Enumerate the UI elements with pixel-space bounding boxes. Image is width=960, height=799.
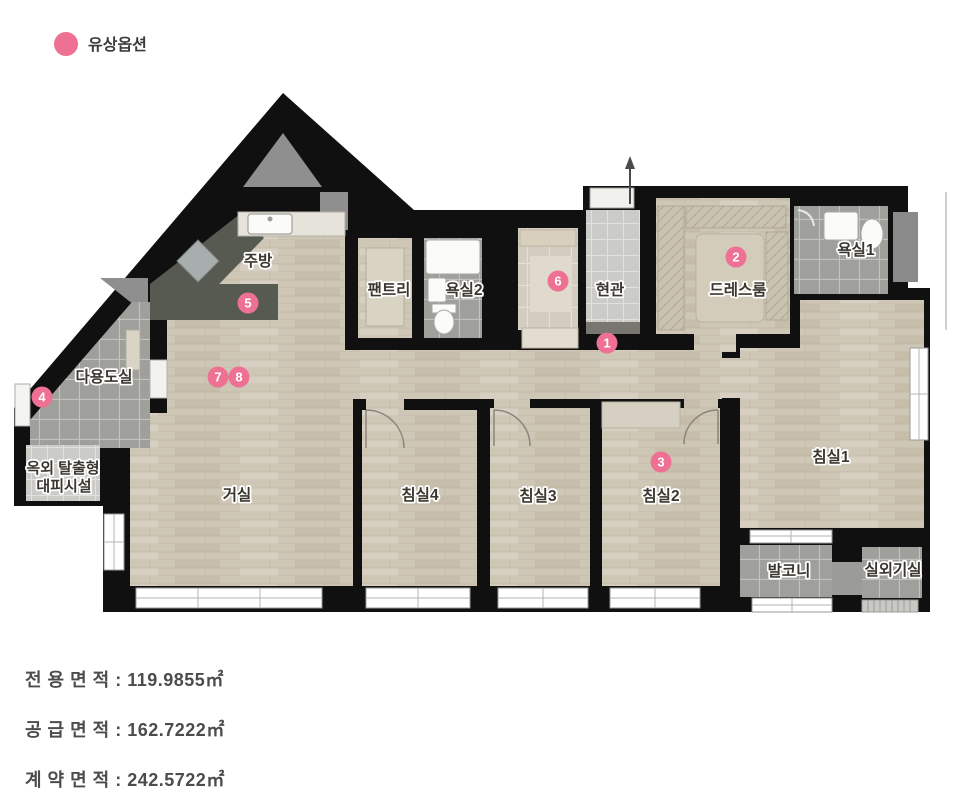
storage-shelf-top bbox=[520, 230, 576, 246]
room-label-pantry: 팬트리 bbox=[368, 281, 411, 299]
kitchen-sink-faucet bbox=[268, 217, 273, 222]
bath2-basin bbox=[428, 278, 446, 302]
balcony-passage bbox=[832, 562, 862, 595]
bedroom2-closet bbox=[602, 402, 680, 428]
room-label-ac-room: 실외기실 bbox=[864, 561, 921, 579]
shelter-exterior-door bbox=[15, 384, 30, 426]
room-label-bedroom3: 침실3 bbox=[519, 486, 557, 505]
option-marker-7-number: 7 bbox=[214, 370, 221, 385]
room-label-entrance: 현관 bbox=[596, 280, 625, 299]
bedroom1-opening bbox=[718, 358, 742, 398]
floorplan-svg: 주방 팬트리 욕실2 현관 드레스룸 욕실1 다용도실 거실 침실4 침실3 침… bbox=[0, 0, 960, 799]
area-info: 전 용 면 적 : 119.9855㎡ 공 급 면 적 : 162.7222㎡ … bbox=[25, 669, 225, 790]
room-label-shelter-line2: 대피시설 bbox=[36, 478, 91, 495]
area-supply: 공 급 면 적 : 162.7222㎡ bbox=[25, 719, 225, 740]
legend-label: 유상옵션 bbox=[88, 36, 147, 54]
option-marker-5: 5 bbox=[238, 293, 259, 314]
bath1-basin bbox=[824, 212, 858, 240]
entrance-door bbox=[590, 188, 634, 208]
option-marker-4: 4 bbox=[32, 387, 53, 408]
bath2-toilet bbox=[434, 310, 454, 334]
room-label-utility: 다용도실 bbox=[75, 368, 132, 386]
option-marker-1: 1 bbox=[597, 333, 618, 354]
option-marker-3-number: 3 bbox=[657, 455, 664, 470]
option-marker-8: 8 bbox=[229, 367, 250, 388]
option-marker-5-number: 5 bbox=[244, 296, 251, 311]
option-marker-6-number: 6 bbox=[554, 274, 561, 289]
room-label-bedroom2: 침실2 bbox=[642, 486, 679, 505]
room-label-dressroom: 드레스룸 bbox=[709, 281, 766, 299]
option-marker-2: 2 bbox=[726, 247, 747, 268]
room-label-bedroom1: 침실1 bbox=[812, 447, 850, 466]
bath2-tub bbox=[426, 240, 480, 274]
area-contract: 계 약 면 적 : 242.5722㎡ bbox=[25, 769, 225, 790]
option-marker-4-number: 4 bbox=[38, 390, 46, 405]
dressroom-closet-top bbox=[686, 206, 786, 228]
dressroom-door-opening bbox=[694, 334, 736, 352]
room-label-balcony: 발코니 bbox=[768, 562, 811, 580]
option-marker-7: 7 bbox=[208, 367, 229, 388]
room-label-shelter-line1: 옥외 탈출형 bbox=[26, 459, 99, 477]
legend-dot bbox=[54, 32, 78, 56]
room-label-bedroom4: 침실4 bbox=[401, 485, 439, 504]
storage-shelf-bottom bbox=[522, 328, 578, 348]
option-marker-6: 6 bbox=[548, 271, 569, 292]
area-exclusive: 전 용 면 적 : 119.9855㎡ bbox=[25, 669, 224, 690]
bedroom4-door bbox=[366, 399, 404, 410]
utility-door bbox=[150, 360, 167, 398]
entrance-step bbox=[586, 322, 640, 334]
room-label-bath2: 욕실2 bbox=[445, 281, 482, 299]
dressroom-closet-left bbox=[658, 206, 684, 330]
duct-shaft bbox=[893, 212, 918, 282]
room-label-kitchen: 주방 bbox=[244, 252, 273, 270]
option-marker-1-number: 1 bbox=[603, 336, 610, 351]
room-entrance-floor bbox=[586, 210, 640, 334]
bedroom3-door bbox=[494, 399, 530, 410]
utility-shelf bbox=[126, 330, 140, 370]
bedroom2-door bbox=[684, 399, 718, 410]
option-marker-2-number: 2 bbox=[732, 250, 739, 265]
option-marker-3: 3 bbox=[651, 452, 672, 473]
floorplan-page: 주방 팬트리 욕실2 현관 드레스룸 욕실1 다용도실 거실 침실4 침실3 침… bbox=[0, 0, 960, 799]
kitchen-counter-bar bbox=[150, 284, 278, 320]
dressroom-closet-right bbox=[766, 232, 788, 320]
dressroom-rug bbox=[696, 234, 764, 322]
room-label-living: 거실 bbox=[223, 486, 252, 504]
option-marker-8-number: 8 bbox=[235, 370, 242, 385]
room-label-bath1: 욕실1 bbox=[837, 241, 875, 259]
